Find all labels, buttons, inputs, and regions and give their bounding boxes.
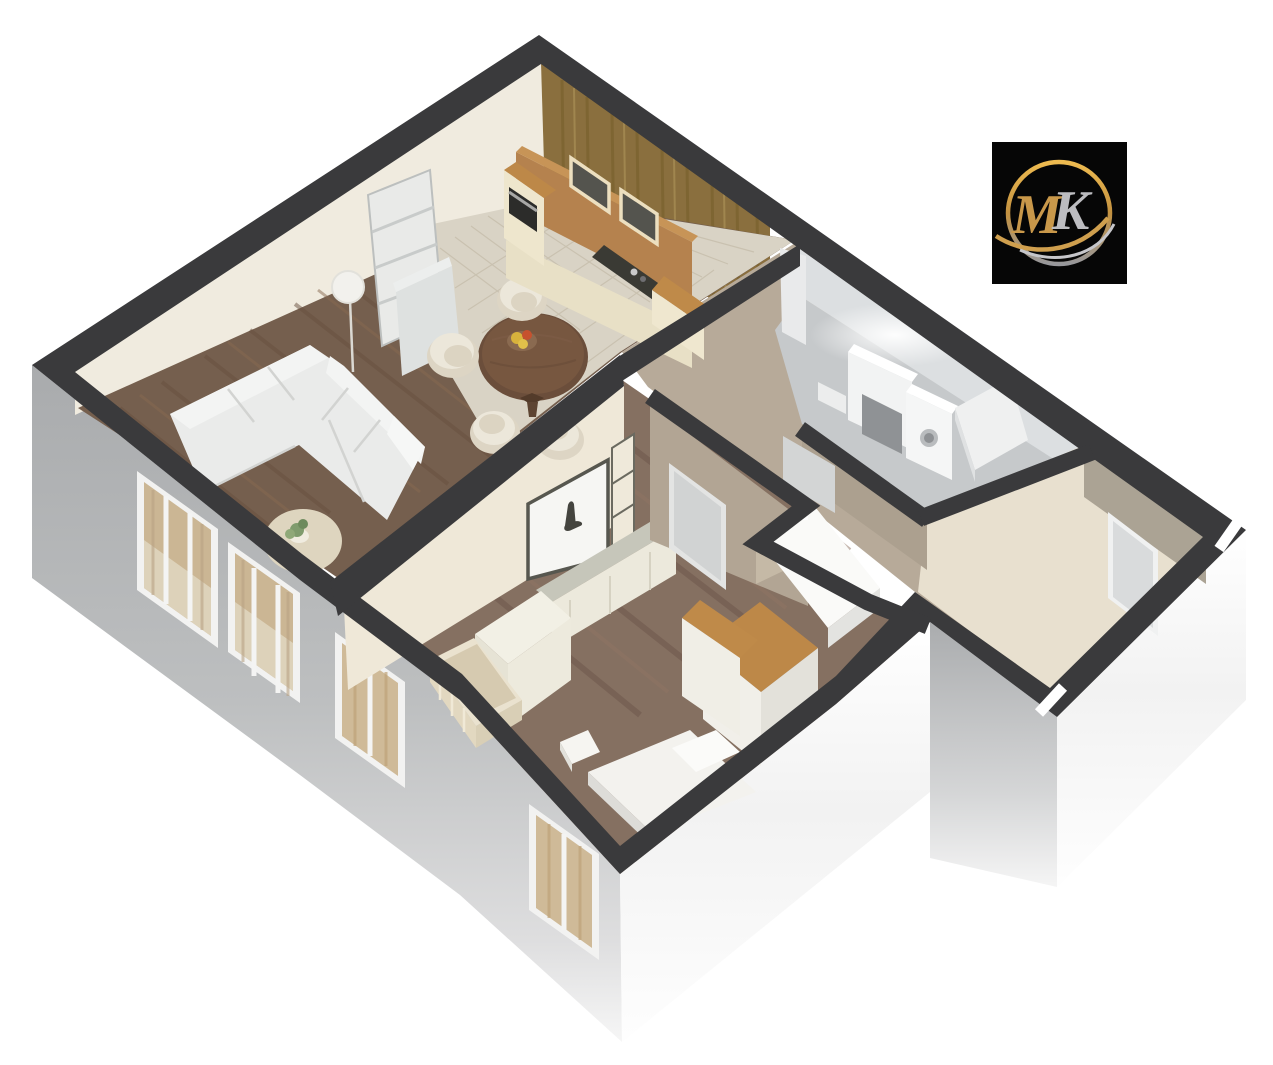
svg-text:K: K xyxy=(1051,180,1093,242)
